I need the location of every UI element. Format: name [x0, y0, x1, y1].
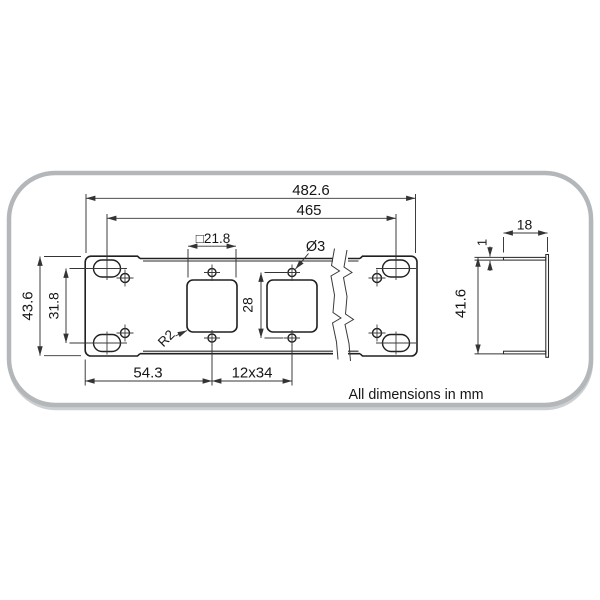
units-note: All dimensions in mm	[348, 387, 483, 403]
dim-slot-spacing-label: 31.8	[46, 292, 62, 319]
dim-thickness-label: 1	[475, 239, 490, 246]
dim-slot-span-label: 465	[296, 202, 321, 219]
dim-first-cutout-offset-label: 54.3	[133, 365, 162, 382]
dim-cutout-size-label: □21.8	[196, 231, 230, 246]
page: 482.6 465 □21.8 Ø3 43.6 31.8 28 54.3 12x…	[0, 0, 600, 600]
dim-cutout-pitch-label: 12x34	[232, 365, 273, 382]
dim-hole-spacing-label: 28	[240, 297, 256, 313]
dim-overall-width-label: 482.6	[292, 182, 330, 199]
dim-flange-depth-label: 18	[517, 217, 533, 233]
dim-flange-height-label: 41.6	[453, 289, 470, 318]
dim-hole-diameter-label: Ø3	[306, 239, 325, 255]
technical-drawing-canvas: 482.6 465 □21.8 Ø3 43.6 31.8 28 54.3 12x…	[0, 0, 600, 600]
dim-overall-height-label: 43.6	[20, 291, 37, 320]
